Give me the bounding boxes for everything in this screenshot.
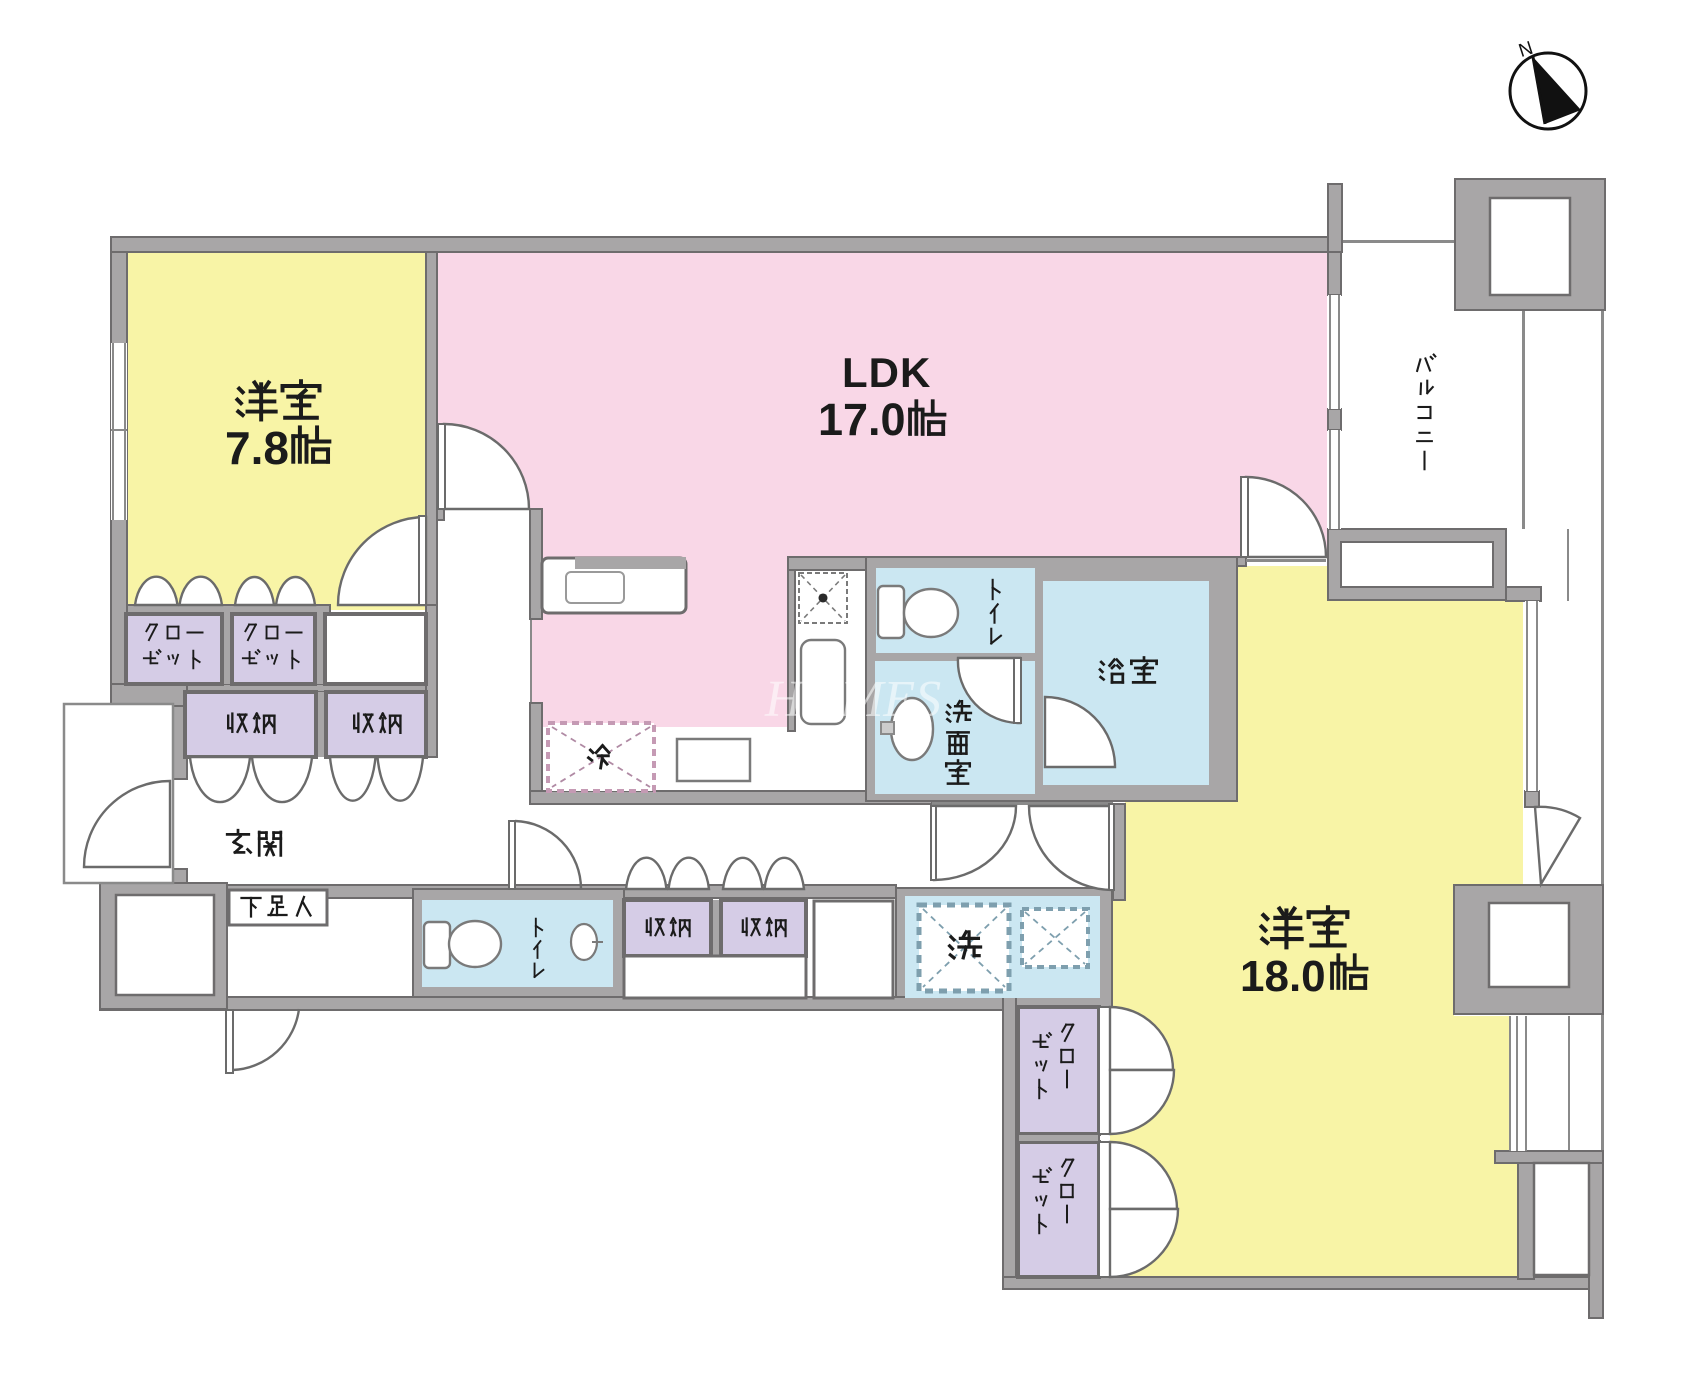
svg-text:7.8: 7.8 — [225, 422, 289, 474]
svg-text:LDK: LDK — [842, 349, 931, 396]
svg-text:18.0: 18.0 — [1240, 952, 1326, 1001]
svg-text:HOMES: HOMES — [764, 671, 941, 728]
svg-text:17.0: 17.0 — [818, 394, 906, 445]
